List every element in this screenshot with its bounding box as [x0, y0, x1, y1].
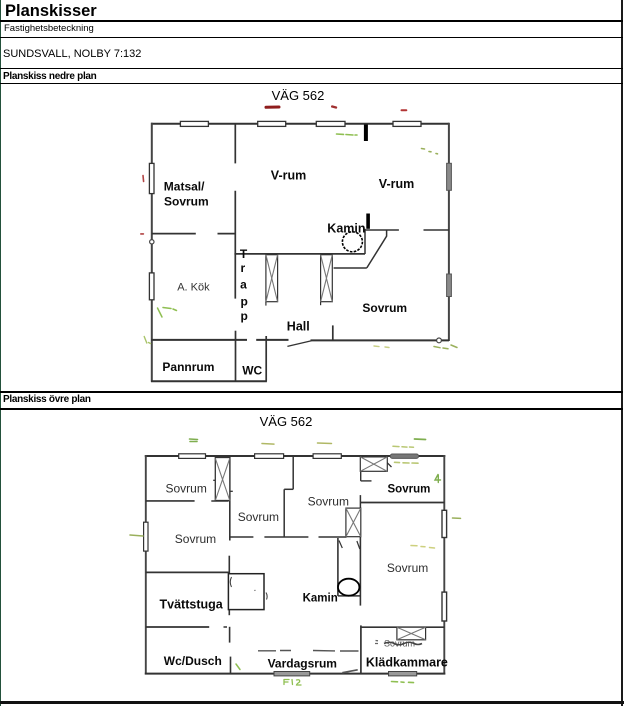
svg-text:Matsal/: Matsal/ — [164, 180, 205, 194]
svg-text:r: r — [241, 261, 246, 275]
svg-text:V-rum: V-rum — [271, 168, 306, 182]
svg-text:A. Kök: A. Kök — [177, 281, 210, 293]
svg-text:a: a — [240, 278, 247, 292]
svg-text:Sovrum: Sovrum — [166, 482, 207, 496]
svg-text:Sovrum: Sovrum — [384, 639, 415, 649]
svg-text:Sovrum: Sovrum — [164, 195, 209, 209]
svg-text:Kamin: Kamin — [327, 221, 365, 235]
svg-text:Pannrum: Pannrum — [162, 360, 214, 374]
svg-text:Sovrum: Sovrum — [308, 495, 349, 509]
svg-text:Sovrum: Sovrum — [175, 532, 216, 546]
svg-text:Klädkammare: Klädkammare — [366, 655, 448, 669]
svg-text:Tvättstuga: Tvättstuga — [160, 598, 224, 612]
svg-text:Hall: Hall — [287, 319, 310, 333]
svg-text:p: p — [241, 294, 248, 308]
svg-text:Vardagsrum: Vardagsrum — [268, 657, 337, 671]
svg-text:Sovrum: Sovrum — [238, 510, 279, 524]
svg-text:T: T — [240, 247, 248, 261]
svg-text:Kamin: Kamin — [303, 592, 338, 604]
svg-text:WC: WC — [242, 363, 262, 377]
svg-text:Wc/Dusch: Wc/Dusch — [164, 654, 222, 668]
svg-text:Sovrum: Sovrum — [362, 301, 407, 315]
svg-text:p: p — [241, 309, 248, 323]
svg-text:Sovrum: Sovrum — [388, 484, 431, 496]
svg-text:V-rum: V-rum — [379, 177, 414, 191]
svg-text:Sovrum: Sovrum — [387, 561, 428, 575]
